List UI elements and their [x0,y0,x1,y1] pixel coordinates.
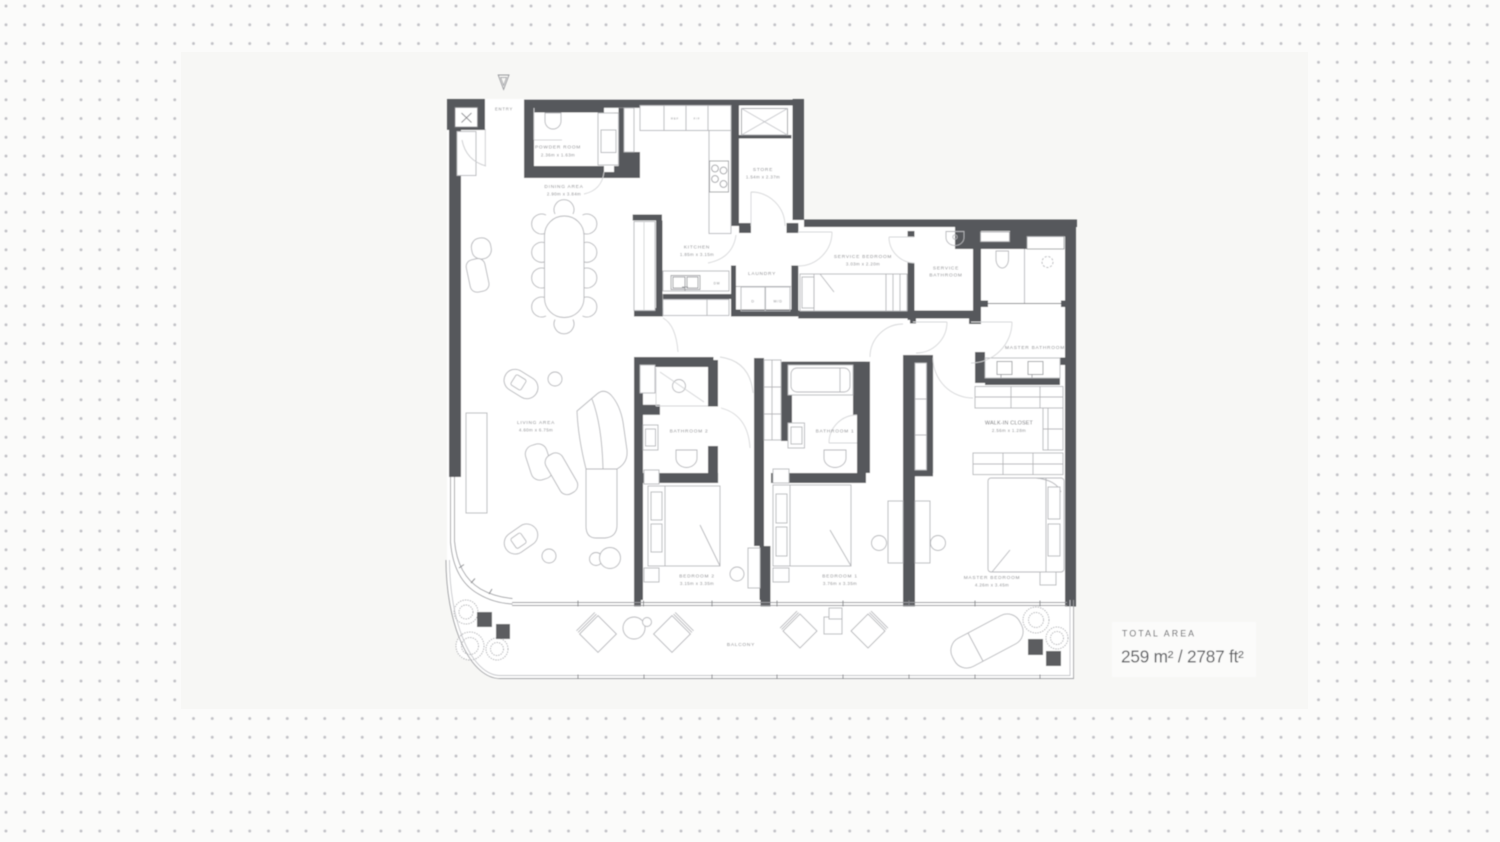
svg-text:STORE: STORE [753,167,773,173]
svg-text:DW: DW [714,282,721,286]
svg-text:2.56m x 1.28m: 2.56m x 1.28m [992,428,1026,433]
svg-text:1.85m x 3.15m: 1.85m x 3.15m [680,252,714,257]
svg-text:SERVICE: SERVICE [933,266,959,272]
svg-text:F/F: F/F [694,117,701,121]
svg-text:KITCHEN: KITCHEN [684,245,710,251]
svg-text:MASTER BATHROOM: MASTER BATHROOM [1005,345,1065,351]
svg-text:259 m² / 2787 ft²: 259 m² / 2787 ft² [1121,647,1244,667]
svg-text:2.90m x 3.84m: 2.90m x 3.84m [547,192,581,197]
svg-text:BATHROOM 1: BATHROOM 1 [816,429,855,435]
svg-text:DINING AREA: DINING AREA [544,184,583,190]
svg-text:SERVICE BEDROOM: SERVICE BEDROOM [834,254,892,260]
svg-text:4.26m x 3.45m: 4.26m x 3.45m [975,583,1009,588]
svg-text:1.54m x 2.37m: 1.54m x 2.37m [746,175,780,180]
svg-text:POWDER ROOM: POWDER ROOM [535,145,581,151]
svg-text:3.76m x 3.35m: 3.76m x 3.35m [823,581,857,586]
svg-text:BATHROOM 2: BATHROOM 2 [670,429,709,435]
svg-text:BALCONY: BALCONY [727,642,755,648]
svg-text:BEDROOM 2: BEDROOM 2 [679,574,715,580]
svg-text:LIVING AREA: LIVING AREA [517,420,555,426]
svg-text:D: D [751,300,754,304]
svg-text:WALK-IN CLOSET: WALK-IN CLOSET [985,421,1034,427]
svg-text:MASTER BEDROOM: MASTER BEDROOM [964,575,1021,581]
svg-text:REF: REF [671,117,679,121]
svg-text:ENTRY: ENTRY [495,107,513,112]
svg-text:2.36m x 1.63m: 2.36m x 1.63m [541,153,575,158]
svg-text:4.60m x 6.75m: 4.60m x 6.75m [519,428,553,433]
svg-text:3.03m x 2.20m: 3.03m x 2.20m [846,262,880,267]
svg-text:3.15m x 3.35m: 3.15m x 3.35m [680,581,714,586]
svg-text:LAUNDRY: LAUNDRY [748,271,776,277]
svg-text:TOTAL AREA: TOTAL AREA [1122,629,1196,639]
svg-text:BATHROOM: BATHROOM [929,273,962,279]
svg-text:BEDROOM 1: BEDROOM 1 [822,574,858,580]
svg-text:W/D: W/D [773,300,782,304]
